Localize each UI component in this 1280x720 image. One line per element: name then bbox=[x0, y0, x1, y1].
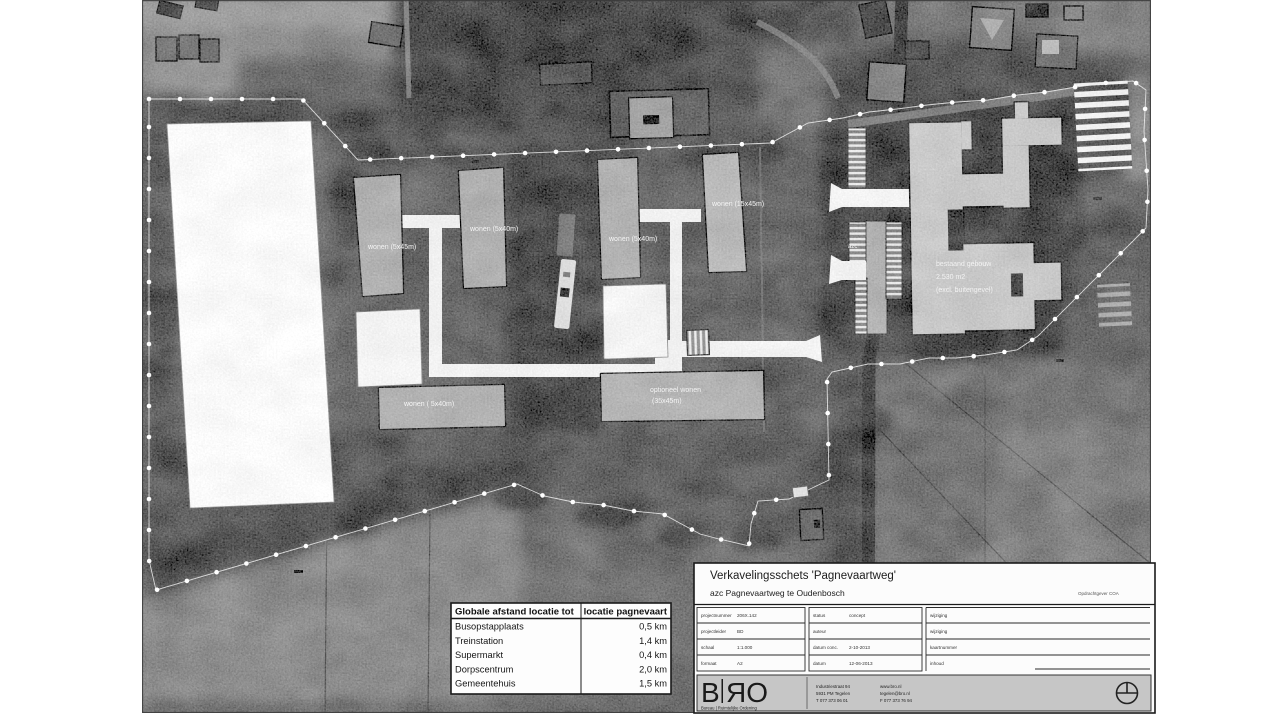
svg-text:206X.142: 206X.142 bbox=[737, 613, 757, 618]
svg-text:0,5 km: 0,5 km bbox=[639, 622, 667, 632]
svg-text:schaal: schaal bbox=[701, 645, 714, 650]
svg-text:bestaand gebouw: bestaand gebouw bbox=[936, 261, 992, 268]
svg-text:kaartnummer: kaartnummer bbox=[930, 645, 958, 650]
svg-text:wijziging: wijziging bbox=[930, 613, 948, 618]
svg-text:Verkavelingsschets 'Pagnevaart: Verkavelingsschets 'Pagnevaartweg' bbox=[710, 570, 896, 582]
svg-text:optioneel wonen: optioneel wonen bbox=[650, 387, 701, 394]
svg-text:2,0 km: 2,0 km bbox=[639, 664, 667, 674]
svg-text:12-06-2013: 12-06-2013 bbox=[849, 661, 873, 666]
svg-text:ЯO: ЯO bbox=[726, 677, 768, 708]
svg-text:Bureau | Ruimtelijke Ordenin: Bureau | Ruimtelijke Ordening bbox=[701, 706, 757, 711]
svg-text:T 077 373 06 01: T 077 373 06 01 bbox=[816, 698, 848, 703]
svg-text:tegelen@bro.nl: tegelen@bro.nl bbox=[880, 691, 910, 696]
svg-text:Gemeentehuis: Gemeentehuis bbox=[455, 679, 516, 689]
svg-text:F 077 373 76 94: F 077 373 76 94 bbox=[880, 698, 913, 703]
svg-text:2.530 m2: 2.530 m2 bbox=[936, 274, 965, 281]
svg-text:Opdrachtgever COA: Opdrachtgever COA bbox=[1078, 591, 1119, 596]
svg-text:Industriestraat 94: Industriestraat 94 bbox=[816, 684, 850, 689]
svg-text:2-10-2013: 2-10-2013 bbox=[849, 645, 870, 650]
svg-text:Treinstation: Treinstation bbox=[455, 636, 503, 646]
svg-text:wonen (15x45m): wonen (15x45m) bbox=[711, 201, 764, 208]
svg-text:Busopstapplaats: Busopstapplaats bbox=[455, 622, 524, 632]
svg-text:(excl. buitengevel): (excl. buitengevel) bbox=[936, 287, 993, 294]
svg-text:wonen (5x45m): wonen (5x45m) bbox=[367, 244, 416, 251]
svg-text:inhoud: inhoud bbox=[930, 661, 944, 666]
svg-text:Dorpscentrum: Dorpscentrum bbox=[455, 664, 514, 674]
svg-text:projectleider: projectleider bbox=[701, 629, 726, 634]
svg-text:(35x45m): (35x45m) bbox=[652, 398, 682, 405]
svg-text:locatie pagnevaart: locatie pagnevaart bbox=[584, 607, 668, 618]
svg-text:A2: A2 bbox=[737, 661, 743, 666]
svg-text:projectnummer: projectnummer bbox=[701, 613, 732, 618]
svg-text:azc: azc bbox=[848, 244, 857, 250]
svg-text:www.bro.nl: www.bro.nl bbox=[880, 684, 901, 689]
svg-text:formaat: formaat bbox=[701, 661, 717, 666]
svg-text:Supermarkt: Supermarkt bbox=[455, 650, 503, 660]
svg-text:datum conc.: datum conc. bbox=[813, 645, 838, 650]
svg-text:wonen (5x40m): wonen (5x40m) bbox=[469, 226, 518, 233]
svg-text:B: B bbox=[701, 677, 720, 708]
svg-text:1,5 km: 1,5 km bbox=[639, 679, 667, 689]
svg-text:wijziging: wijziging bbox=[930, 629, 948, 634]
svg-text:BD: BD bbox=[737, 629, 744, 634]
svg-text:status: status bbox=[813, 613, 826, 618]
svg-text:datum: datum bbox=[813, 661, 826, 666]
svg-text:azc Pagnevaartweg te Oudenbosc: azc Pagnevaartweg te Oudenbosch bbox=[710, 588, 845, 598]
svg-text:1:1.000: 1:1.000 bbox=[737, 645, 753, 650]
svg-text:5931 PM Tegelen: 5931 PM Tegelen bbox=[816, 691, 851, 696]
svg-text:wonen (5x40m): wonen (5x40m) bbox=[608, 236, 657, 243]
svg-text:1,4 km: 1,4 km bbox=[639, 636, 667, 646]
svg-text:0,4 km: 0,4 km bbox=[639, 650, 667, 660]
svg-text:wonen ( 5x40m): wonen ( 5x40m) bbox=[403, 401, 454, 408]
svg-text:concept: concept bbox=[849, 613, 866, 618]
svg-text:Globale afstand locatie tot: Globale afstand locatie tot bbox=[455, 607, 575, 618]
svg-text:auteur: auteur bbox=[813, 629, 826, 634]
